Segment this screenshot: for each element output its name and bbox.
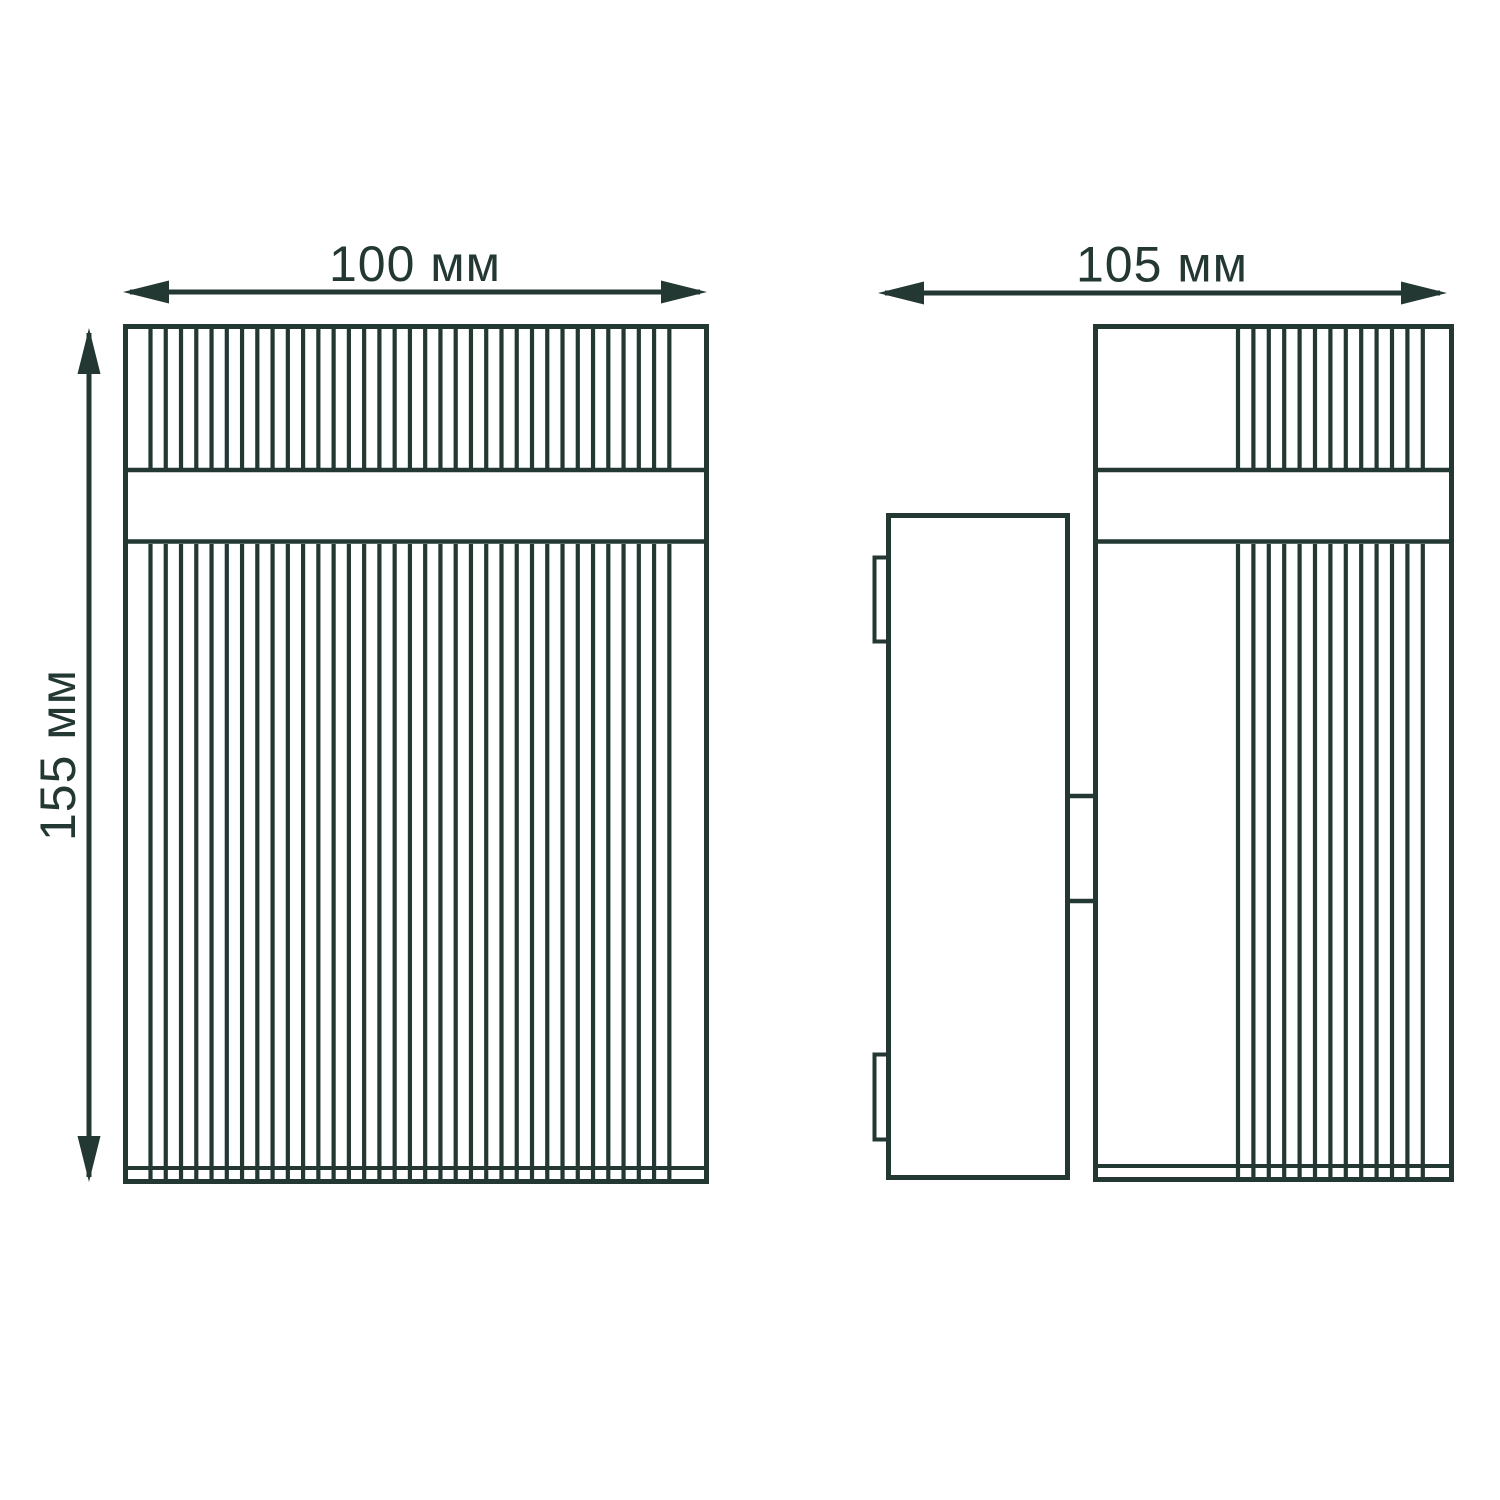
side-depth-dimension: 105 мм (878, 237, 1447, 305)
arrow-right-icon (1401, 282, 1447, 305)
arrow-left-icon (123, 281, 169, 304)
front-ribs-top (151, 328, 670, 468)
technical-drawing-page: 100 мм 155 мм 105 мм (0, 0, 1500, 1500)
side-body-outline (1096, 327, 1452, 1180)
side-view: 105 мм (875, 237, 1455, 1180)
plate-outline (889, 516, 1068, 1178)
side-mounting-plate (875, 516, 1098, 1178)
front-width-dimension: 100 мм (123, 236, 707, 304)
front-height-label: 155 мм (30, 669, 86, 841)
arrow-left-icon (878, 282, 924, 305)
side-ribs-top (1238, 328, 1423, 468)
front-view: 100 мм 155 мм (30, 236, 709, 1182)
front-height-dimension: 155 мм (30, 328, 101, 1182)
side-ribs-bottom (1238, 544, 1423, 1178)
arrow-right-icon (661, 281, 707, 304)
side-depth-label: 105 мм (1076, 237, 1248, 293)
front-ribs-bottom (151, 544, 670, 1180)
front-width-label: 100 мм (329, 236, 501, 292)
wall-lamp-dimension-drawing: 100 мм 155 мм 105 мм (0, 0, 1500, 1500)
arrow-up-icon (78, 328, 101, 374)
arrow-down-icon (78, 1136, 101, 1182)
